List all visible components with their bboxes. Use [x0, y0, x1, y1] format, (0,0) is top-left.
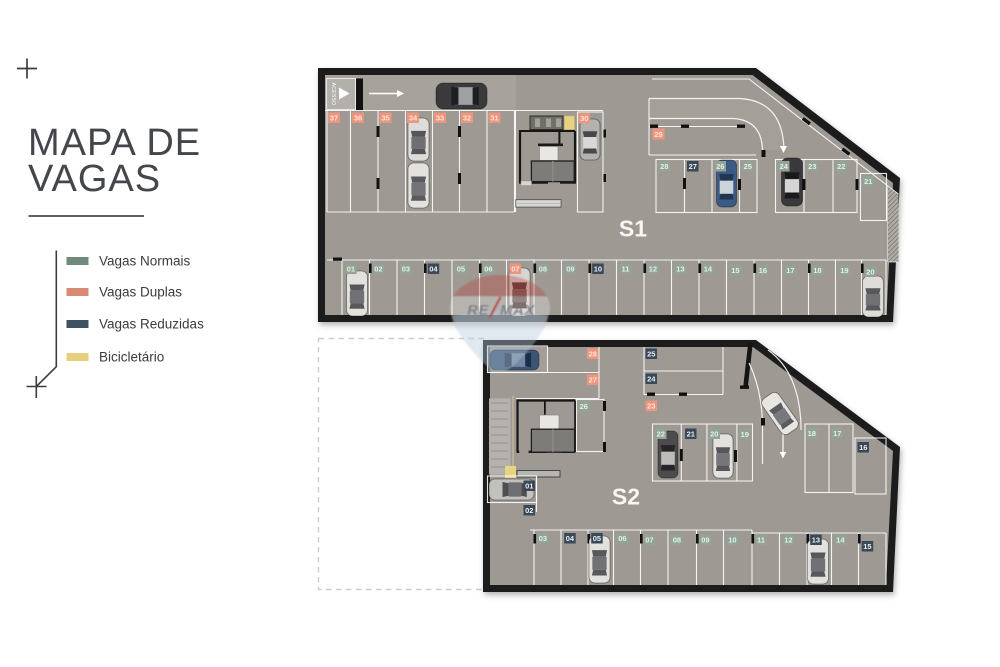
svg-text:34: 34: [409, 114, 418, 123]
svg-text:VAGAS: VAGAS: [28, 158, 161, 200]
svg-text:08: 08: [539, 265, 547, 274]
svg-text:35: 35: [381, 114, 389, 123]
svg-text:10: 10: [728, 536, 736, 545]
svg-text:05: 05: [593, 534, 601, 543]
svg-text:21: 21: [864, 177, 872, 186]
svg-text:ACESSO: ACESSO: [330, 83, 336, 106]
svg-text:09: 09: [566, 265, 574, 274]
svg-text:31: 31: [490, 114, 498, 123]
svg-text:01: 01: [525, 482, 533, 491]
svg-text:15: 15: [863, 542, 871, 551]
svg-text:36: 36: [354, 114, 362, 123]
svg-text:22: 22: [657, 430, 665, 439]
svg-text:13: 13: [812, 536, 820, 545]
svg-text:10: 10: [594, 265, 602, 274]
svg-text:15: 15: [731, 266, 739, 275]
svg-text:11: 11: [621, 265, 629, 274]
svg-text:25: 25: [744, 162, 752, 171]
svg-text:03: 03: [402, 265, 410, 274]
svg-text:12: 12: [784, 536, 792, 545]
svg-text:16: 16: [759, 266, 767, 275]
svg-text:06: 06: [618, 534, 626, 543]
svg-text:04: 04: [429, 265, 438, 274]
svg-text:33: 33: [436, 114, 444, 123]
svg-text:Vagas Normais: Vagas Normais: [99, 254, 191, 269]
svg-text:32: 32: [463, 114, 471, 123]
svg-text:37: 37: [330, 114, 338, 123]
svg-text:06: 06: [484, 265, 492, 274]
svg-text:13: 13: [676, 265, 684, 274]
svg-text:20: 20: [866, 268, 874, 277]
svg-text:05: 05: [457, 265, 465, 274]
svg-text:19: 19: [840, 266, 848, 275]
svg-text:18: 18: [813, 266, 821, 275]
svg-text:21: 21: [687, 430, 695, 439]
svg-text:09: 09: [701, 536, 709, 545]
svg-text:07: 07: [645, 536, 653, 545]
svg-text:Vagas Duplas: Vagas Duplas: [99, 285, 182, 300]
svg-text:04: 04: [566, 534, 575, 543]
svg-text:16: 16: [859, 443, 867, 452]
svg-text:S2: S2: [612, 484, 640, 510]
svg-text:27: 27: [689, 162, 697, 171]
svg-text:12: 12: [649, 265, 657, 274]
svg-text:30: 30: [580, 114, 588, 123]
svg-text:14: 14: [704, 265, 713, 274]
svg-text:23: 23: [647, 402, 655, 411]
svg-text:17: 17: [786, 266, 794, 275]
svg-text:RE: RE: [467, 302, 489, 319]
svg-text:03: 03: [539, 534, 547, 543]
svg-text:20: 20: [710, 430, 718, 439]
svg-text:23: 23: [808, 162, 816, 171]
svg-text:01: 01: [347, 265, 355, 274]
svg-text:S1: S1: [619, 216, 647, 242]
svg-text:MAX: MAX: [500, 302, 535, 319]
svg-text:26: 26: [580, 402, 588, 411]
svg-text:02: 02: [525, 506, 533, 515]
svg-text:28: 28: [660, 162, 668, 171]
svg-text:26: 26: [716, 162, 724, 171]
svg-text:28: 28: [589, 350, 597, 359]
svg-text:Bicicletário: Bicicletário: [99, 350, 164, 365]
svg-text:02: 02: [374, 265, 382, 274]
svg-text:08: 08: [673, 536, 681, 545]
svg-text:24: 24: [780, 162, 789, 171]
svg-text:17: 17: [833, 429, 841, 438]
svg-text:11: 11: [757, 536, 765, 545]
svg-text:24: 24: [647, 375, 656, 384]
svg-text:27: 27: [589, 376, 597, 385]
svg-text:19: 19: [741, 430, 749, 439]
svg-text:Vagas Reduzidas: Vagas Reduzidas: [99, 317, 204, 332]
svg-text:18: 18: [808, 429, 816, 438]
svg-text:22: 22: [837, 162, 845, 171]
svg-text:29: 29: [654, 130, 662, 139]
svg-text:25: 25: [647, 350, 655, 359]
svg-text:07: 07: [511, 265, 519, 274]
svg-text:14: 14: [836, 536, 845, 545]
